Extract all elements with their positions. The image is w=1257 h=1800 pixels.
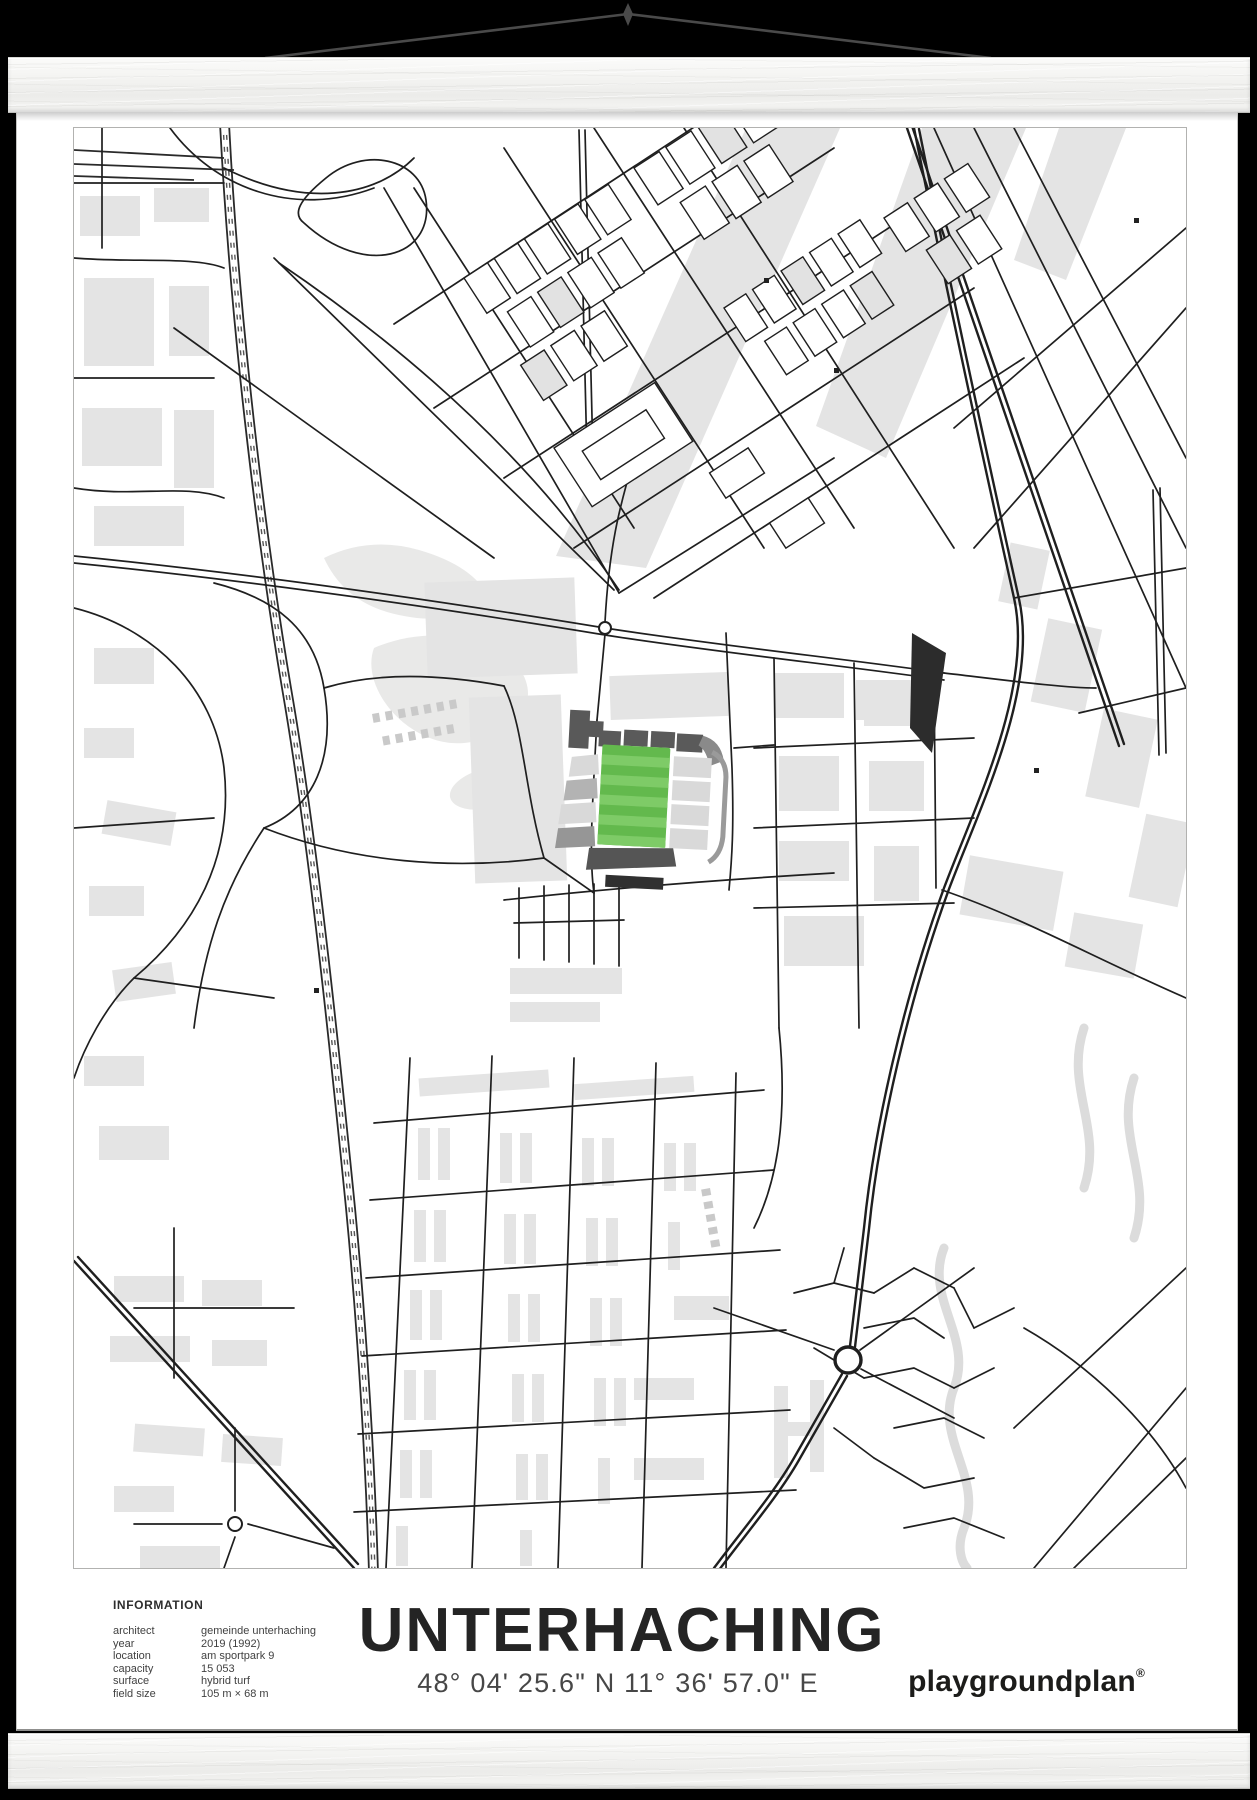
info-label: location — [113, 1650, 201, 1663]
info-value: gemeinde unterhaching — [201, 1625, 316, 1638]
wooden-hanger-bottom — [8, 1733, 1250, 1789]
coordinates: 48° 04' 25.6" N 11° 36' 57.0" E — [417, 1668, 819, 1699]
info-label: surface — [113, 1675, 201, 1688]
info-row: field size105 m × 68 m — [113, 1688, 316, 1701]
brand-name: playgroundplan — [908, 1665, 1136, 1698]
info-label: capacity — [113, 1663, 201, 1676]
info-row: surfacehybrid turf — [113, 1675, 316, 1688]
hanger-shadow — [17, 112, 1237, 121]
stand-south — [585, 844, 677, 891]
info-value: 2019 (1992) — [201, 1638, 260, 1651]
map-streams — [939, 1028, 1140, 1568]
poster: INFORMATION architectgemeinde unterhachi… — [16, 112, 1238, 1731]
brand-logo: playgroundplan® — [908, 1665, 1145, 1699]
info-row: capacity15 053 — [113, 1663, 316, 1676]
roundabout-large — [835, 1347, 861, 1373]
info-row: architectgemeinde unterhaching — [113, 1625, 316, 1638]
stand-east — [669, 750, 728, 863]
info-value: am sportpark 9 — [201, 1650, 274, 1663]
info-label: year — [113, 1638, 201, 1651]
info-row: year2019 (1992) — [113, 1638, 316, 1651]
cord-knot-icon — [623, 3, 633, 26]
info-row: locationam sportpark 9 — [113, 1650, 316, 1663]
info-heading: INFORMATION — [113, 1598, 316, 1612]
roundabout-small-stadium — [599, 622, 611, 634]
map-illustration — [74, 128, 1186, 1568]
poster-product-photo: INFORMATION architectgemeinde unterhachi… — [0, 0, 1257, 1800]
embankment-wedge — [910, 633, 946, 753]
stadium — [553, 709, 729, 893]
wooden-hanger-top — [8, 57, 1250, 113]
info-value: 15 053 — [201, 1663, 235, 1676]
info-value: hybrid turf — [201, 1675, 250, 1688]
info-label: architect — [113, 1625, 201, 1638]
registered-mark: ® — [1136, 1666, 1145, 1680]
roundabout-small-west — [228, 1517, 242, 1531]
info-value: 105 m × 68 m — [201, 1688, 269, 1701]
info-block: INFORMATION architectgemeinde unterhachi… — [113, 1598, 316, 1701]
poster-title: UNTERHACHING — [359, 1600, 886, 1662]
info-label: field size — [113, 1688, 201, 1701]
pitch — [597, 744, 670, 847]
stadium-map — [73, 127, 1187, 1569]
